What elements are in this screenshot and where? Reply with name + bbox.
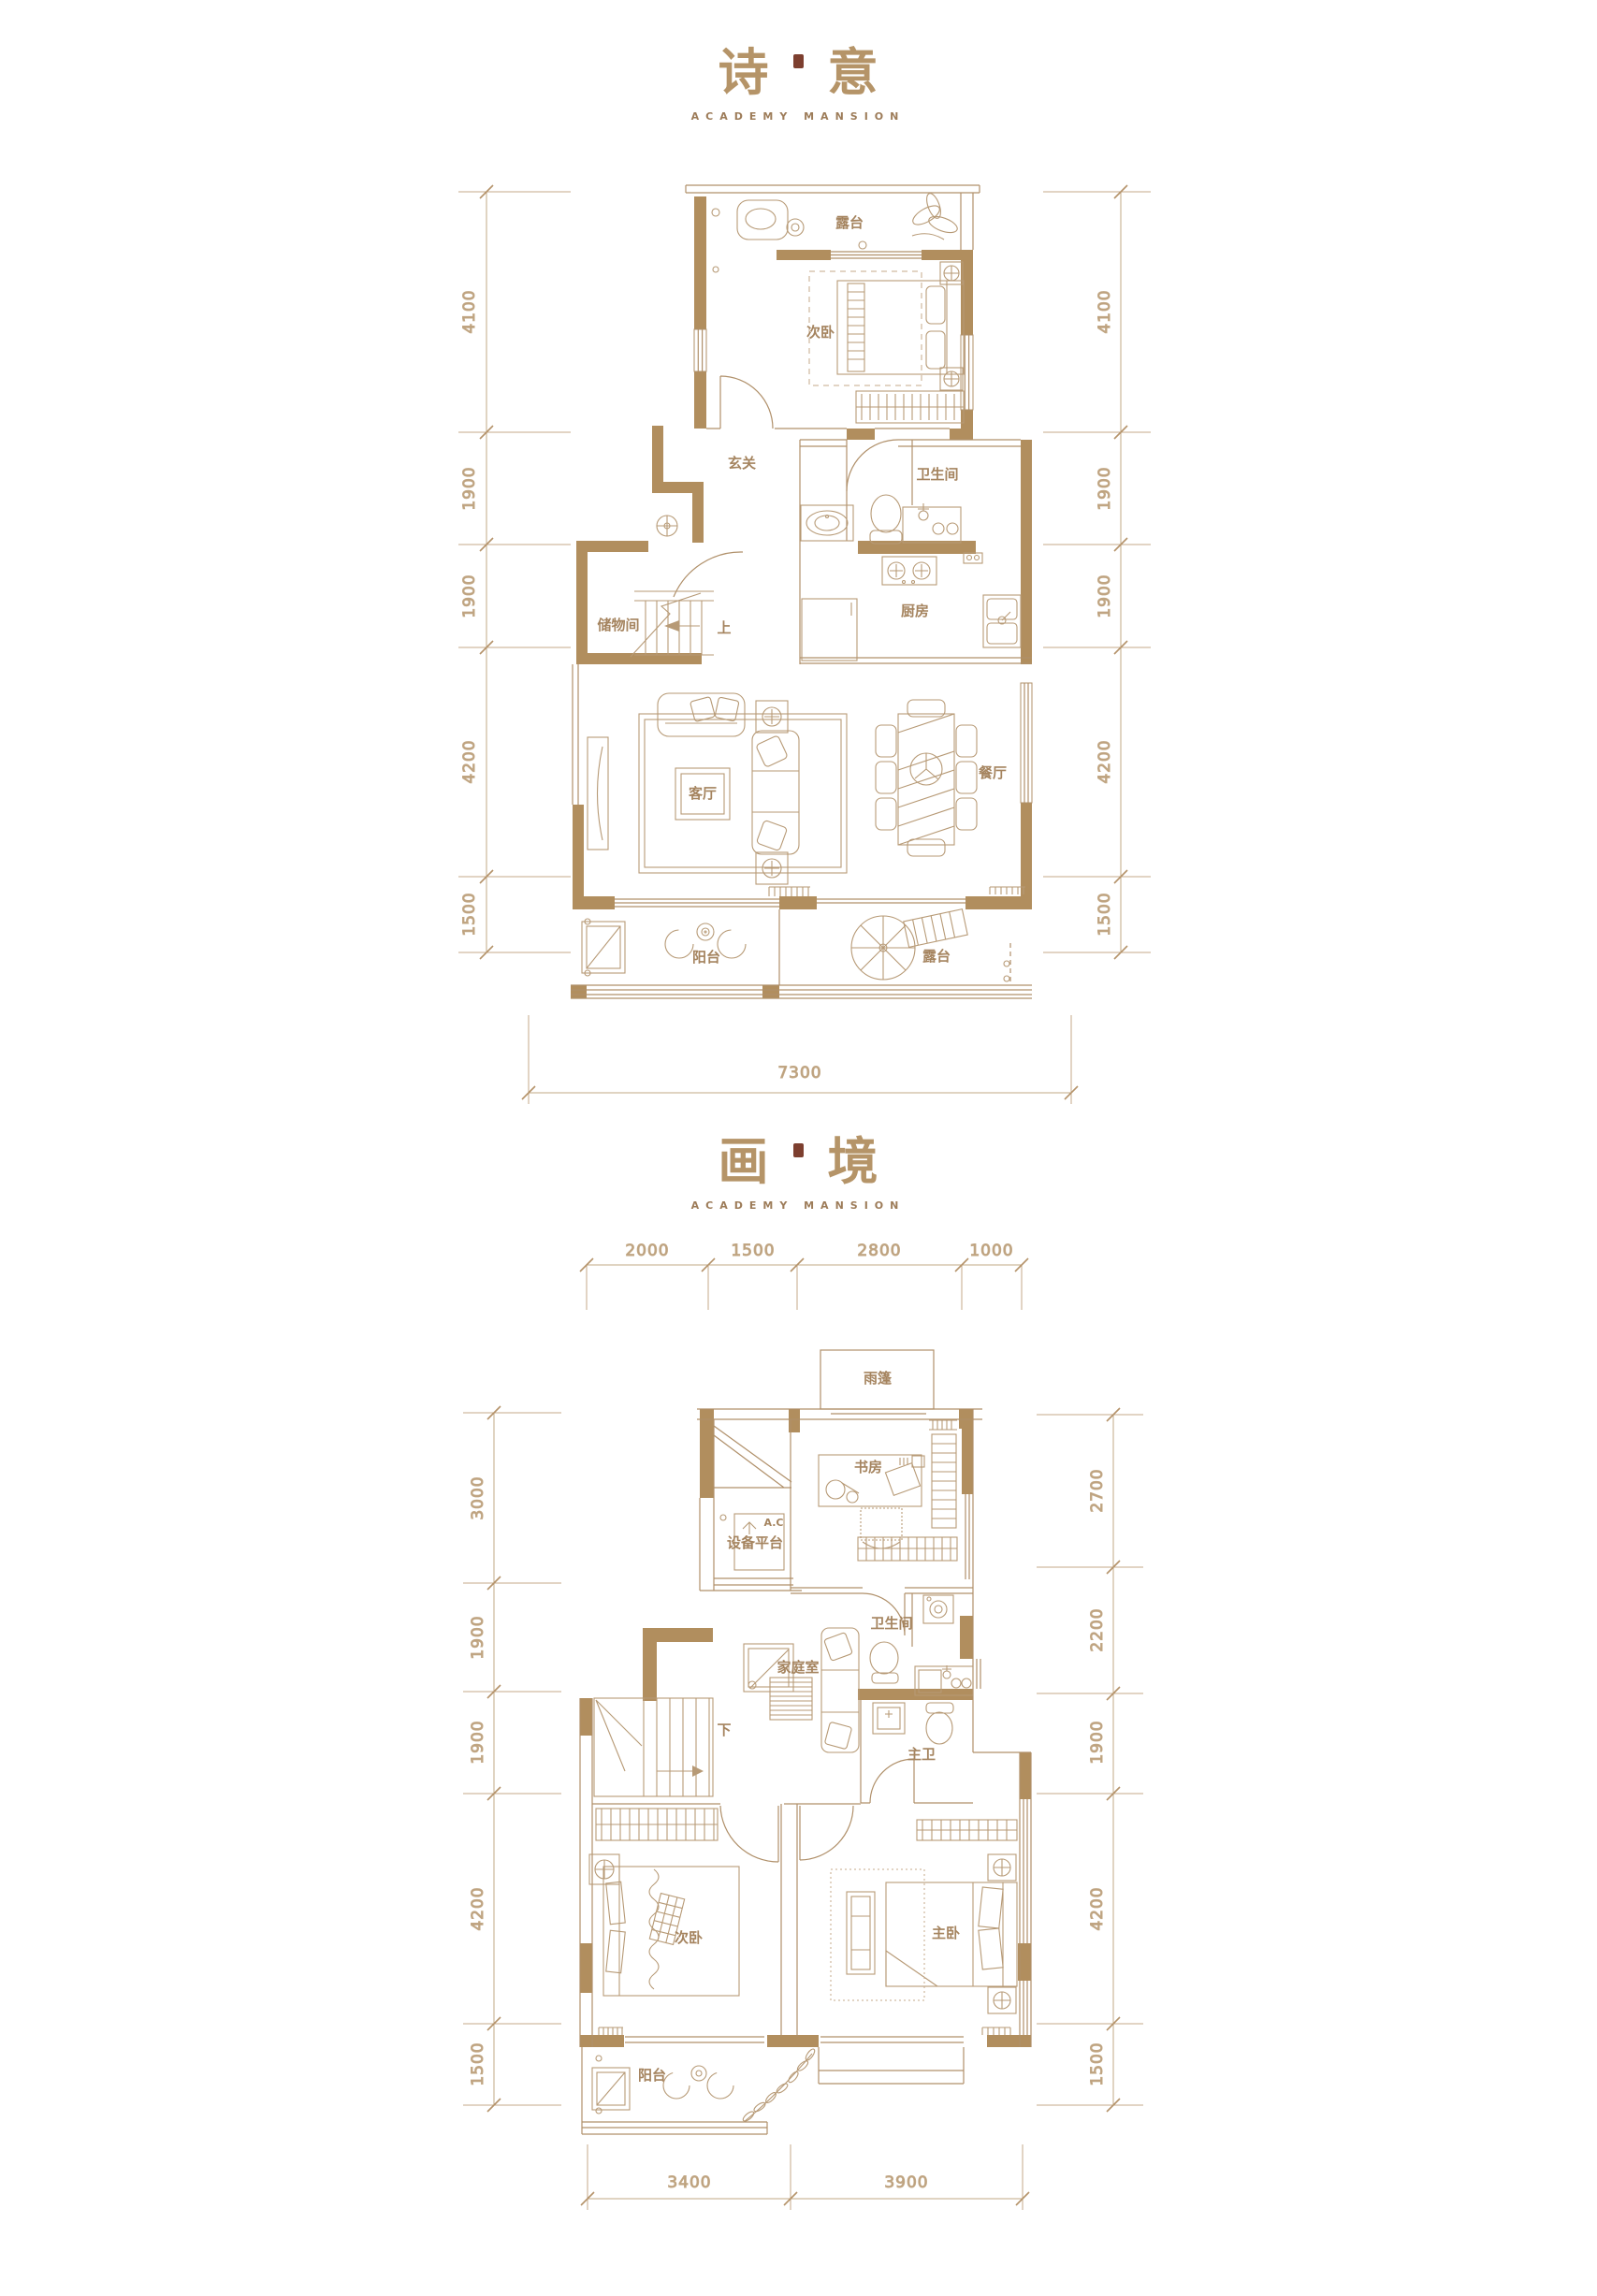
room-label-terrace-bottom: 露台	[922, 948, 951, 965]
room-label-bedroom2: 次卧	[675, 1929, 703, 1946]
dim-label: 2700	[1088, 1468, 1107, 1512]
dim-label: 3900	[884, 2173, 928, 2192]
dim-label: 7300	[777, 1064, 821, 1083]
balcony-chairs	[585, 919, 746, 976]
bath-counter	[903, 503, 961, 543]
dim-label: 2000	[625, 1242, 669, 1260]
lounge-chair	[904, 909, 967, 948]
radiator-combs	[599, 2027, 1010, 2035]
dim-label: 4100	[460, 289, 479, 333]
dim-label: 4200	[1088, 1886, 1107, 1930]
ceiling-fan-icon	[657, 516, 677, 536]
kitchen-sink	[983, 595, 1021, 647]
dim-label: 1000	[969, 1242, 1013, 1260]
room-labels: 露台 次卧 玄关 卫生间 储物间 上 厨房 客厅 餐厅 阳台 露台	[597, 214, 1007, 966]
plan2-title-char1: 画	[719, 1136, 769, 1189]
wardrobe	[596, 1809, 718, 1840]
room-label-canopy: 雨篷	[864, 1370, 893, 1387]
tv-cabinet	[847, 1892, 875, 1974]
room-label-living: 客厅	[688, 785, 717, 802]
room-label-terrace-top: 露台	[835, 214, 864, 231]
seal-icon	[793, 54, 804, 68]
tv-cabinet	[588, 737, 608, 850]
floor-plan-page: 诗 意 ACADEMY MANSION	[0, 0, 1597, 2296]
dim-label: 4200	[1096, 739, 1114, 783]
toilet	[870, 1642, 898, 1683]
vent-box	[964, 553, 982, 563]
ac-label: A.C	[764, 1517, 784, 1529]
dim-label: 1900	[469, 1720, 487, 1764]
sofa	[658, 693, 799, 884]
dim-label: 3000	[469, 1475, 487, 1519]
bathtub	[712, 200, 866, 272]
plant-icon	[742, 2048, 817, 2123]
room-label-master-bedroom: 主卧	[932, 1925, 960, 1941]
dim-label: 3400	[667, 2173, 711, 2192]
room-label-balcony: 阳台	[638, 2067, 666, 2084]
rug	[770, 1678, 812, 1720]
furniture	[589, 1420, 1017, 2123]
ceiling-fan-icon	[589, 1854, 619, 1884]
room-label-bedroom2: 次卧	[806, 324, 835, 341]
rug	[639, 714, 847, 873]
master-wardrobe	[917, 1820, 1017, 1840]
nightstand	[988, 1854, 1016, 2013]
toilet	[870, 495, 902, 544]
washing-machine	[923, 1595, 953, 1623]
planter-box	[592, 2068, 630, 2110]
walls	[580, 1409, 1031, 2047]
bed	[603, 1867, 739, 1996]
floor-plan-shiyi: 露台 次卧 玄关 卫生间 储物间 上 厨房 客厅 餐厅 阳台 露台 4100 1…	[412, 108, 1160, 1127]
dim-label: 1900	[460, 574, 479, 618]
room-label-master-bath: 主卫	[907, 1746, 936, 1763]
washbasin	[801, 505, 853, 541]
stairs-direction-label: 上	[717, 619, 731, 636]
plan1-title-char1: 诗	[719, 47, 769, 100]
dining-table	[876, 700, 977, 856]
fridge	[802, 599, 857, 661]
dim-label: 1900	[460, 466, 479, 510]
room-label-equipment-platform: 设备平台	[727, 1534, 783, 1551]
room-label-family: 家庭室	[777, 1659, 819, 1676]
planter-box	[582, 922, 625, 973]
furniture	[582, 192, 1025, 981]
dim-label: 1900	[1088, 1720, 1107, 1764]
plan2-title-block: 画 境 ACADEMY MANSION	[564, 1136, 1032, 1212]
dim-label: 1500	[731, 1242, 775, 1260]
stairs	[631, 591, 714, 657]
room-label-study: 书房	[854, 1459, 882, 1475]
plan1-title: 诗 意	[564, 47, 1032, 100]
windows	[694, 329, 1032, 803]
plant-icon	[910, 192, 960, 240]
seal-icon	[793, 1143, 804, 1157]
master-bath-sink	[873, 1703, 905, 1734]
plan2-subtitle: ACADEMY MANSION	[564, 1199, 1032, 1212]
dim-label: 4200	[460, 739, 479, 783]
room-label-bathroom: 卫生间	[916, 466, 958, 483]
room-label-kitchen: 厨房	[901, 603, 929, 619]
dim-label: 1500	[460, 892, 479, 936]
umbrella-icon	[851, 916, 915, 980]
dim-label: 1500	[1088, 2042, 1107, 2085]
floor-plan-huajing: 雨篷 书房 A.C 设备平台 卫生间 家庭室 主卫 下 次卧 主卧 阳台 200…	[412, 1240, 1160, 2245]
bookshelf	[929, 1420, 957, 1528]
plan2-title: 画 境	[564, 1136, 1032, 1189]
stairs-direction-label: 下	[717, 1722, 731, 1738]
wardrobe	[856, 391, 964, 423]
room-label-dining: 餐厅	[979, 764, 1007, 781]
dim-label: 1500	[469, 2042, 487, 2085]
walls	[571, 196, 1032, 998]
dim-label: 1900	[1096, 466, 1114, 510]
bed	[837, 281, 964, 374]
room-label-foyer: 玄关	[728, 455, 756, 472]
dim-label: 4200	[469, 1886, 487, 1930]
dim-label: 2800	[857, 1242, 901, 1260]
room-labels: 雨篷 书房 A.C 设备平台 卫生间 家庭室 主卫 下 次卧 主卧 阳台	[638, 1370, 960, 2084]
sofa	[821, 1628, 859, 1752]
stairs	[594, 1698, 713, 1796]
radiator	[858, 1537, 957, 1561]
dim-label: 4100	[1096, 289, 1114, 333]
room-label-storage: 储物间	[597, 617, 639, 633]
stove	[882, 557, 936, 585]
room-label-bathroom: 卫生间	[870, 1615, 912, 1632]
plan1-title-char2: 意	[828, 47, 878, 100]
rug-fringe	[831, 1869, 924, 2000]
dim-label: 2200	[1088, 1607, 1107, 1651]
desk-chair	[861, 1508, 902, 1548]
plan2-title-char2: 境	[828, 1136, 878, 1189]
dim-label: 1500	[1096, 892, 1114, 936]
dimension-lines: 4100 1900 1900 4200 1500 4100 1900 1900 …	[458, 185, 1151, 1104]
room-label-balcony: 阳台	[692, 949, 720, 966]
dim-label: 1900	[469, 1615, 487, 1659]
master-bath-toilet	[926, 1703, 953, 1744]
dim-label: 1900	[1096, 574, 1114, 618]
